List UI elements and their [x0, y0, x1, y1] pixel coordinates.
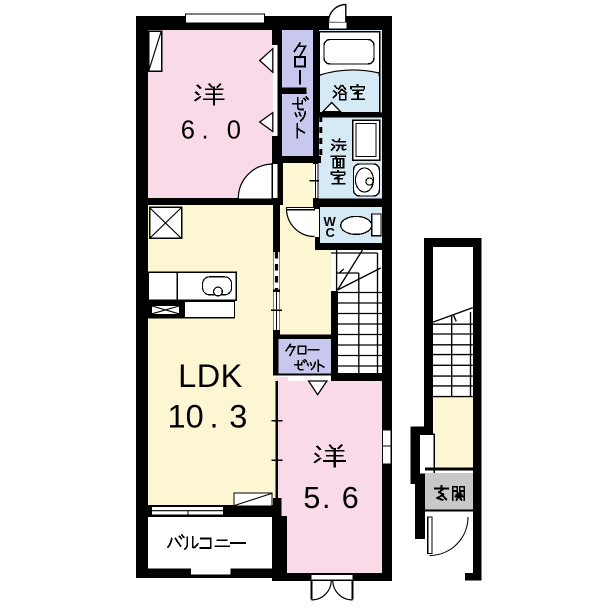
svg-text:.: .: [322, 481, 330, 515]
svg-text:6: 6: [181, 117, 195, 145]
svg-text:.: .: [210, 398, 219, 434]
svg-text:0: 0: [227, 117, 241, 145]
svg-text:LDK: LDK: [178, 358, 243, 394]
svg-text:C: C: [326, 225, 336, 240]
svg-text:.: .: [202, 117, 209, 145]
svg-text:10: 10: [168, 398, 204, 434]
svg-text:5: 5: [303, 481, 320, 515]
svg-text:6: 6: [342, 481, 359, 515]
svg-text:3: 3: [229, 398, 247, 434]
